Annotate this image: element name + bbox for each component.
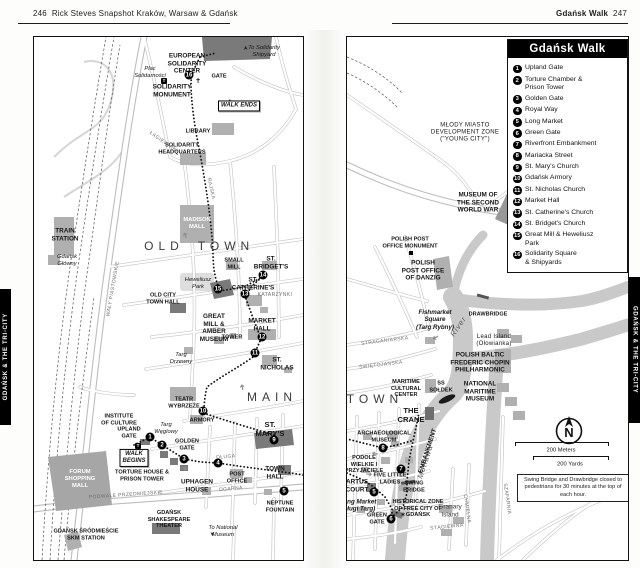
map-label-gdańsk-główny: Gdańsk Główny: [57, 254, 77, 268]
legend-item-number: 12: [513, 198, 522, 207]
map-label-post-office: POST OFFICE: [227, 471, 248, 484]
legend-item-number: 6: [513, 129, 522, 138]
left-page-header: 246 Rick Steves Snapshot Kraków, Warsaw …: [33, 9, 238, 18]
map-label-old: OLD: [144, 239, 184, 253]
right-page-number: 247: [613, 9, 627, 18]
map-marker-9: 9: [270, 436, 279, 445]
map-label-tower: TOWER: [222, 335, 243, 342]
map-label-label: ➤: [207, 531, 214, 536]
map-label-upland-gate: UPLAND GATE: [117, 426, 140, 439]
legend-item-number: 8: [513, 152, 522, 161]
legend-item-8: 8Mariacka Street: [513, 152, 624, 161]
compass-north-label: N: [564, 425, 573, 440]
map-label-archaeological-museum: ARCHAEOLOGICAL MUSEUM: [357, 430, 410, 443]
map-label-walk-ends: WALK ENDS: [218, 100, 260, 111]
legend-item-label: Torture Chamber & Prison Tower: [525, 76, 582, 93]
map-marker-3: 3: [180, 455, 189, 464]
legend-item-label: Gdańsk Armory: [525, 174, 572, 182]
map-label-old-city-town-hall: OLD CITY TOWN HALL: [146, 292, 179, 305]
left-page-title: Rick Steves Snapshot Kraków, Warsaw & Gd…: [52, 9, 238, 18]
map-label-train-station: TRAIN STATION: [51, 227, 78, 242]
legend-item-number: 5: [513, 118, 522, 127]
legend-item-label: Great Mill & Heweliusz Park: [525, 231, 593, 248]
map-label-gate: GATE: [211, 74, 226, 81]
legend-item-number: 14: [513, 221, 522, 230]
map-label-national-maritime-museum: NATIONAL MARITIME MUSEUM: [464, 381, 497, 404]
right-edge-tab-label: GDAŃSK & THE TRI-CITY: [632, 306, 638, 393]
map-label-label: ✝: [195, 78, 201, 86]
map-label-green-gate: GREEN GATE: [367, 512, 387, 525]
map-label-label: ✶: [400, 512, 406, 520]
legend-item-15: 15Great Mill & Heweliusz Park: [513, 231, 624, 248]
legend-item-3: 3Golden Gate: [513, 95, 624, 104]
legend-item-number: 16: [513, 251, 522, 260]
legend-item-12: 12Market Hall: [513, 197, 624, 206]
left-edge-tab: GDAŃSK & THE TRI-CITY: [0, 289, 11, 425]
map-label-label: ➔: [372, 449, 378, 458]
right-edge-tab: GDAŃSK & THE TRI-CITY: [629, 277, 640, 423]
map-marker-15: 15: [214, 285, 223, 294]
scale-bar-meters: [515, 442, 609, 446]
map-marker-8: 8: [379, 444, 388, 453]
map-marker-13: 13: [241, 290, 250, 299]
map-marker-7: 7: [397, 465, 406, 474]
legend-item-7: 7Riverfront Embankment: [513, 140, 624, 149]
map-marker-4: 4: [214, 459, 223, 468]
legend-item-label: St. Catherine's Church: [525, 209, 593, 217]
map-marker-2: 2: [158, 441, 167, 450]
map-label-five-little-ladies: FIVE LITTLE LADIES: [374, 472, 407, 485]
bridge-closure-note-text: Swing Bridge and Drawbridge closed to pe…: [524, 477, 622, 498]
legend-item-number: 10: [513, 175, 522, 184]
scale-meters-label: 200 Meters: [547, 448, 576, 455]
map-label-teatr-wybrzeże: TEATR WYBRZEŻE: [168, 396, 199, 409]
map-label-gdańsk-śródmieście-skm-sta: GDAŃSK ŚRÓDMIEŚCIE SKM STATION: [54, 528, 119, 541]
legend-item-number: 3: [513, 95, 522, 104]
left-page-number: 246: [33, 9, 47, 18]
map-marker-14: 14: [259, 271, 268, 280]
legend-item-11: 11St. Nicholas Church: [513, 186, 624, 195]
map-label-town: TOWN: [198, 239, 254, 253]
map-label-uphagen-house: UPHAGEN HOUSE: [181, 478, 213, 493]
scale-yards-label: 200 Yards: [557, 462, 583, 469]
map-label-armory: ARMORY: [190, 418, 215, 425]
map-label-solidarity-monument: SOLIDARITY MONUMENT: [153, 83, 192, 98]
legend-item-number: 7: [513, 141, 522, 150]
map-label-młody-miasto-development-z: MŁODY MIASTO DEVELOPMENT ZONE ("YOUNG CI…: [431, 122, 499, 143]
map-label-small-mill: SMALL MILL: [224, 257, 243, 270]
legend-item-number: 9: [513, 164, 522, 173]
map-label-town: TOWN: [347, 392, 403, 406]
map-label-artus-court: ARTUS COURT: [346, 478, 368, 493]
legend-item-5: 5Long Market: [513, 118, 624, 127]
map-label-label: ➔: [365, 470, 372, 479]
map-marker-5: 5: [280, 487, 289, 496]
legend-item-label: Solidarity Square & Shipyards: [525, 250, 577, 267]
map-label-granary-island: Granary Island: [438, 503, 461, 518]
map-label-walk-begins: WALK BEGINS: [119, 449, 148, 467]
page-gutter: [302, 30, 346, 568]
legend-item-label: Mariacka Street: [525, 152, 573, 160]
legend-item-13: 13St. Catherine's Church: [513, 209, 624, 218]
legend-item-label: Market Hall: [525, 197, 559, 205]
right-header-rule: [392, 23, 628, 24]
left-edge-tab-label: GDAŃSK & THE TRI-CITY: [3, 313, 9, 400]
legend-item-2: 2Torture Chamber & Prison Tower: [513, 76, 624, 93]
legend-item-10: 10Gdańsk Armory: [513, 174, 624, 183]
legend-item-label: Golden Gate: [525, 95, 564, 103]
map-marker-6: 6: [387, 515, 396, 524]
map-marker-16: 16: [185, 71, 194, 80]
map-legend: Gdańsk Walk 1Upland Gate2Torture Chamber…: [507, 39, 628, 273]
legend-item-9: 9St. Mary's Church: [513, 163, 624, 172]
map-label-market-hall: MARKET HALL: [248, 317, 275, 332]
map-marker-10: 10: [199, 407, 208, 416]
legend-item-16: 16Solidarity Square & Shipyards: [513, 250, 624, 267]
map-label-town-hall: TOWN HALL: [265, 465, 284, 480]
map-label-neptune-fountain: NEPTUNE FOUNTAIN: [266, 500, 294, 513]
map-marker-11: 11: [251, 349, 260, 358]
map-label-golden-gate: GOLDEN GATE: [175, 438, 199, 451]
scale-bar-yards: [533, 456, 609, 460]
map-label-institute-of-culture: INSTITUTE OF CULTURE: [101, 413, 137, 426]
legend-item-number: 4: [513, 107, 522, 116]
map-label-drawbridge: DRAWBRIDGE: [469, 312, 508, 319]
map-label-targ-drzewny: Targ Drzewny: [170, 352, 193, 366]
map-label-katarzynki: KATARZYNKI: [258, 293, 293, 299]
map-label-gdańsk-shakespeare-theater: GDAŃSK SHAKESPEARE THEATER: [148, 510, 191, 530]
bridge-closure-note: Swing Bridge and Drawbridge closed to pe…: [517, 474, 629, 502]
map-label-polish-baltic-frederic-cho: POLISH BALTIC FREDERIC CHOPIN PHILHARMON…: [450, 352, 509, 375]
legend-item-label: St. Bridget's Church: [525, 220, 585, 228]
legend-item-label: Green Gate: [525, 129, 561, 137]
map-label-library: LIBRARY: [186, 129, 211, 136]
map-label-museum-of-the-second-world: MUSEUM OF THE SECOND WORLD WAR: [457, 192, 499, 215]
legend-item-number: 1: [513, 65, 522, 74]
map-label-label: ➤: [243, 45, 250, 50]
legend-item-label: St. Nicholas Church: [525, 186, 585, 194]
legend-item-label: Royal Way: [525, 106, 558, 114]
right-page-header: Gdańsk Walk 247: [556, 9, 627, 18]
legend-item-number: 15: [513, 232, 522, 241]
legend-items: 1Upland Gate2Torture Chamber & Prison To…: [508, 58, 627, 272]
legend-item-label: St. Mary's Church: [525, 163, 579, 171]
right-page-title: Gdańsk Walk: [556, 9, 608, 18]
map-label-the-crane: THE CRANE: [397, 407, 424, 425]
right-map-page: MŁODY MIASTO DEVELOPMENT ZONE ("YOUNG CI…: [346, 36, 629, 561]
legend-item-1: 1Upland Gate: [513, 64, 624, 73]
map-marker-12: 12: [258, 333, 267, 342]
map-label-swing-bridge: SWING BRIDGE: [403, 480, 425, 493]
map-marker-5: 5: [370, 488, 379, 497]
map-label-to-solidarity-shipyard: To Solidarity Shipyard: [248, 45, 280, 59]
legend-item-number: 13: [513, 209, 522, 218]
legend-item-6: 6Green Gate: [513, 129, 624, 138]
map-label-st-bridget-s: ST. BRIDGET'S: [254, 255, 289, 270]
legend-item-label: Riverfront Embankment: [525, 140, 596, 148]
map-label-st-nicholas: ST. NICHOLAS: [260, 356, 293, 371]
map-label-fishmarket-square-targ-ryb: Fishmarket Square (Targ Rybny): [416, 309, 454, 331]
map-label-heweliusz-park: Heweliusz Park: [185, 277, 211, 291]
map-label-ss-sołdek: SS SOŁDEK: [429, 380, 452, 393]
map-label-madison-mall: MADISON MALL: [183, 217, 210, 231]
map-label-polish-post-office-monumen: POLISH POST OFFICE MONUMENT: [382, 236, 437, 249]
legend-item-14: 14St. Bridget's Church: [513, 220, 624, 229]
map-marker-1: 1: [146, 433, 155, 442]
map-label-torture-house-prison-tower: TORTURE HOUSE & PRISON TOWER: [115, 469, 169, 482]
map-label-polish-post-office-of-danz: POLISH POST OFFICE OF DANZIG: [402, 260, 445, 283]
legend-item-number: 11: [513, 186, 522, 195]
legend-item-4: 4Royal Way: [513, 106, 624, 115]
map-label-targ-węglowy: Targ Węglowy: [154, 422, 178, 436]
map-label-forum-shopping-mall: FORUM SHOPPING MALL: [65, 469, 96, 489]
left-map-page: EUROPEAN SOLIDARITY CENTERTo Solidarity …: [33, 36, 304, 561]
left-header-rule: [18, 23, 230, 24]
legend-item-number: 2: [513, 76, 522, 85]
legend-item-label: Upland Gate: [525, 64, 563, 72]
map-label-long-market-długi-targ: Long Market (Długi Targ): [346, 499, 376, 514]
map-label-lead-island-ołowianka: Lead Island (Ołowianka): [476, 334, 511, 348]
map-label-st-catherine-s: ST. CATHERINE'S: [232, 276, 275, 291]
map-label-main: MAIN: [247, 390, 297, 404]
legend-item-label: Long Market: [525, 118, 563, 126]
legend-title: Gdańsk Walk: [508, 40, 627, 58]
